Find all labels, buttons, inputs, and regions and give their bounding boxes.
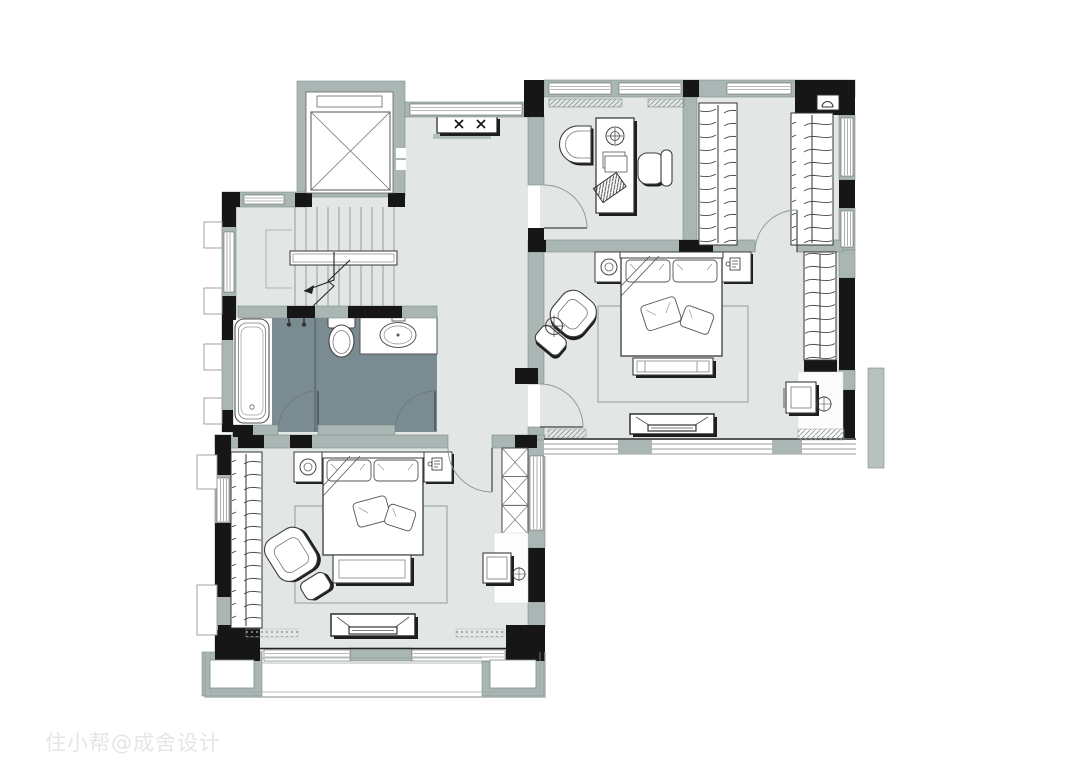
bedroom2-wardrobe [231,452,262,628]
desk-lamp-icon [606,127,624,145]
console-table [433,116,500,139]
study-desk [593,118,637,216]
bedroom2-bed [322,452,424,555]
balcony-planter-right [490,660,536,688]
bedroom2-window-mat-right [456,629,504,637]
closet-pendant-lamp-icon [817,95,839,110]
watermark-text: 住小帮@成舍设计 [45,727,221,757]
stair-handrail [290,251,397,265]
master-nightstand-right [722,252,753,284]
master-tv-cabinet [630,414,717,437]
bedroom2-desk [483,553,514,586]
master-foot-bench [633,358,716,378]
master-bed [620,252,723,356]
toilet [328,317,355,357]
balcony-planter-left [210,660,254,688]
bedroom2-tv-cabinet [331,614,418,639]
bathroom [233,310,437,432]
master-wardrobe [804,252,836,360]
master-door-mat [548,429,586,438]
bedroom2-storage-cabinet [502,448,528,534]
bathtub [235,319,269,423]
elevator-shaft [306,92,406,193]
master-dressing-table [784,382,819,416]
bedroom2-nightstand-right [424,452,454,484]
closet-wardrobe-left [699,103,737,245]
bedroom2-foot-bench [333,555,414,586]
bedroom2-nightstand-left [294,452,324,484]
floor-plan-drawing [0,0,1080,764]
master-window-mat [798,429,844,440]
study-office-chair [638,150,672,187]
bedroom2-window-mat-left [246,629,298,637]
floor-plan-canvas: 住小帮@成舍设计 [0,0,1080,764]
